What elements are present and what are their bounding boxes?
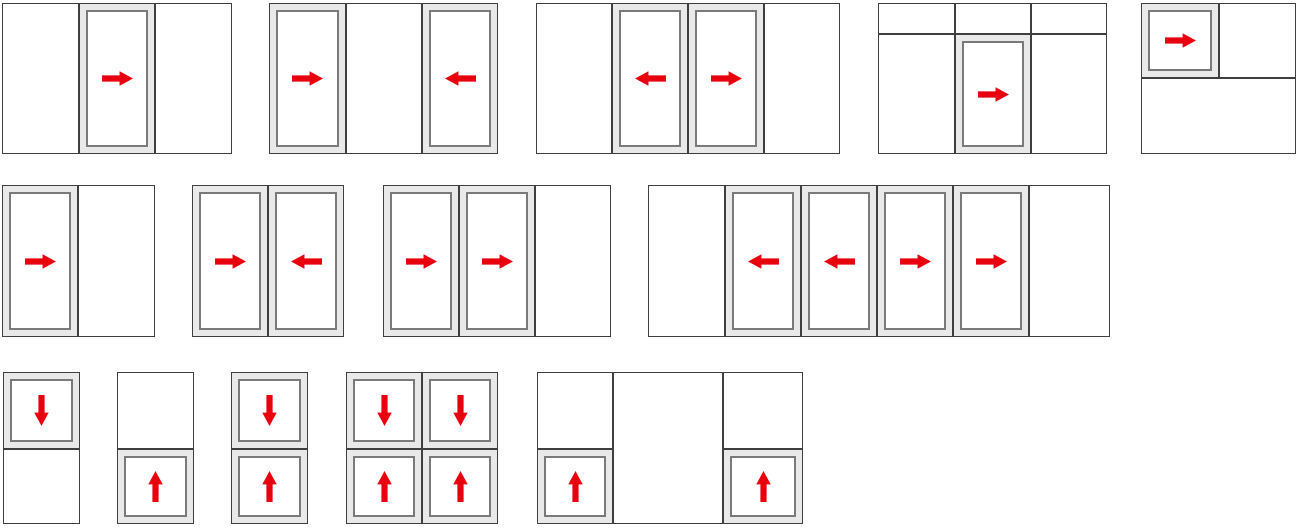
fixed-panel-cell: [1031, 34, 1107, 154]
arrow-right-icon: [1165, 32, 1196, 49]
arrow-left-icon: [291, 253, 322, 270]
arrow-right-icon: [482, 253, 513, 270]
sliding-sash-cell: [268, 185, 344, 337]
diagram-canvas: [0, 0, 1300, 528]
sliding-sash-cell: [801, 185, 877, 337]
window-config-14[interactable]: [537, 372, 803, 524]
sliding-sash-cell: [346, 449, 422, 524]
sash-glass-pane: [10, 379, 73, 442]
arrow-up-icon: [261, 471, 278, 502]
sliding-sash-cell: [3, 372, 80, 449]
window-config-12[interactable]: [231, 372, 308, 524]
arrow-left-icon: [748, 253, 779, 270]
sash-glass-pane: [730, 456, 796, 517]
fixed-panel-cell: [613, 372, 723, 524]
window-config-07[interactable]: [192, 185, 344, 337]
arrow-down-icon: [261, 395, 278, 426]
sliding-sash-cell: [422, 3, 498, 154]
sliding-sash-cell: [346, 372, 422, 449]
arrow-right-icon: [292, 70, 323, 87]
arrow-left-icon: [445, 70, 476, 87]
arrow-up-icon: [452, 471, 469, 502]
sliding-sash-cell: [723, 449, 803, 524]
sash-glass-pane: [619, 10, 681, 147]
window-config-11[interactable]: [117, 372, 194, 524]
sliding-sash-cell: [117, 449, 194, 524]
fixed-panel-cell: [1141, 78, 1296, 154]
arrow-down-icon: [33, 395, 50, 426]
sliding-sash-cell: [612, 3, 688, 154]
fixed-panel-cell: [155, 3, 232, 154]
sash-glass-pane: [238, 456, 301, 517]
sliding-sash-cell: [231, 372, 308, 449]
window-config-03[interactable]: [536, 3, 840, 154]
fixed-panel-cell: [1029, 185, 1110, 337]
sliding-sash-cell: [953, 185, 1029, 337]
sash-glass-pane: [808, 192, 870, 330]
sliding-sash-cell: [422, 372, 498, 449]
sliding-sash-cell: [459, 185, 535, 337]
window-config-04[interactable]: [878, 3, 1107, 154]
arrow-left-icon: [824, 253, 855, 270]
sliding-sash-cell: [688, 3, 764, 154]
sash-glass-pane: [238, 379, 301, 442]
fixed-panel-cell: [346, 3, 422, 154]
sash-glass-pane: [962, 41, 1024, 147]
fixed-panel-cell: [535, 185, 611, 337]
sliding-sash-cell: [955, 34, 1031, 154]
window-config-06[interactable]: [2, 185, 155, 337]
fixed-panel-cell: [723, 372, 803, 449]
sliding-sash-cell: [2, 185, 78, 337]
sash-glass-pane: [199, 192, 261, 330]
fixed-panel-cell: [78, 185, 155, 337]
arrow-up-icon: [147, 471, 164, 502]
arrow-down-icon: [376, 395, 393, 426]
arrow-right-icon: [978, 86, 1009, 103]
window-config-09[interactable]: [648, 185, 1110, 337]
sliding-sash-cell: [725, 185, 801, 337]
sash-glass-pane: [9, 192, 71, 330]
arrow-up-icon: [376, 471, 393, 502]
fixed-panel-cell: [537, 372, 613, 449]
window-config-05[interactable]: [1141, 3, 1296, 154]
arrow-right-icon: [900, 253, 931, 270]
sash-glass-pane: [86, 10, 148, 147]
sash-glass-pane: [390, 192, 452, 330]
arrow-right-icon: [406, 253, 437, 270]
fixed-panel-cell: [1031, 3, 1107, 34]
fixed-panel-cell: [1219, 3, 1296, 78]
sash-glass-pane: [353, 379, 415, 442]
fixed-panel-cell: [648, 185, 725, 337]
window-config-10[interactable]: [3, 372, 80, 524]
fixed-panel-cell: [536, 3, 612, 154]
window-config-01[interactable]: [2, 3, 232, 154]
sliding-sash-cell: [269, 3, 346, 154]
arrow-right-icon: [215, 253, 246, 270]
arrow-down-icon: [452, 395, 469, 426]
sliding-sash-cell: [231, 449, 308, 524]
sash-glass-pane: [429, 456, 491, 517]
fixed-panel-cell: [2, 3, 79, 154]
window-config-02[interactable]: [269, 3, 498, 154]
arrow-right-icon: [711, 70, 742, 87]
fixed-panel-cell: [878, 3, 955, 34]
sash-glass-pane: [353, 456, 415, 517]
fixed-panel-cell: [3, 449, 80, 524]
sliding-sash-cell: [537, 449, 613, 524]
arrow-right-icon: [25, 253, 56, 270]
sash-glass-pane: [124, 456, 187, 517]
sliding-sash-cell: [1141, 3, 1219, 78]
sliding-sash-cell: [192, 185, 268, 337]
window-config-08[interactable]: [383, 185, 611, 337]
sash-glass-pane: [429, 379, 491, 442]
arrow-right-icon: [102, 70, 133, 87]
sash-glass-pane: [544, 456, 606, 517]
fixed-panel-cell: [117, 372, 194, 449]
sash-glass-pane: [429, 10, 491, 147]
arrow-right-icon: [976, 253, 1007, 270]
fixed-panel-cell: [955, 3, 1031, 34]
sash-glass-pane: [960, 192, 1022, 330]
sash-glass-pane: [884, 192, 946, 330]
sash-glass-pane: [732, 192, 794, 330]
sash-glass-pane: [276, 10, 339, 147]
fixed-panel-cell: [878, 34, 955, 154]
sash-glass-pane: [695, 10, 757, 147]
arrow-left-icon: [635, 70, 666, 87]
arrow-up-icon: [755, 471, 772, 502]
sash-glass-pane: [1148, 10, 1212, 71]
window-config-13[interactable]: [346, 372, 498, 524]
sliding-sash-cell: [422, 449, 498, 524]
sash-glass-pane: [466, 192, 528, 330]
sliding-sash-cell: [383, 185, 459, 337]
fixed-panel-cell: [764, 3, 840, 154]
arrow-up-icon: [567, 471, 584, 502]
sash-glass-pane: [275, 192, 337, 330]
sliding-sash-cell: [79, 3, 155, 154]
sliding-sash-cell: [877, 185, 953, 337]
